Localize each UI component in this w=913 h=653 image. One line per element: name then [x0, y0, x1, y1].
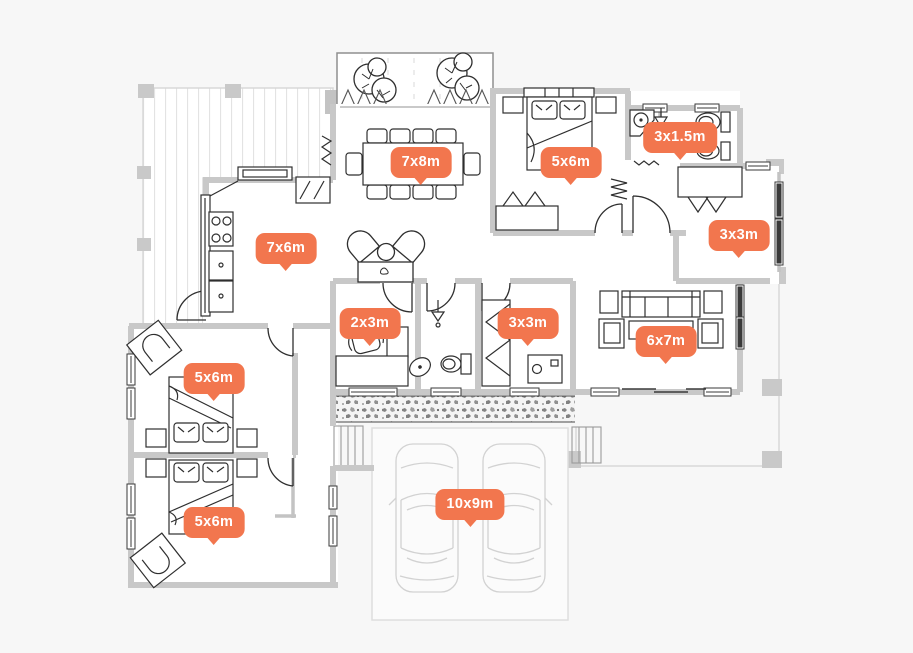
dimension-badge-bedroom-2: 5x6m	[184, 507, 245, 538]
dimension-badge-laundry: 3x3m	[498, 308, 559, 339]
dimension-badge-living: 6x7m	[636, 326, 697, 357]
dimension-badge-bathroom-top: 3x1.5m	[643, 122, 717, 153]
floor-plan-canvas: 7x8m 5x6m 3x1.5m 3x3m 7x6m 2x3m 3x3m 6x7…	[0, 0, 913, 653]
dresser	[496, 206, 558, 230]
dimension-badge-garage: 10x9m	[435, 489, 504, 520]
dimension-badge-dining: 7x8m	[391, 147, 452, 178]
sofa	[622, 291, 700, 317]
gravel-path	[333, 396, 575, 422]
dimension-badge-kitchen: 7x6m	[256, 233, 317, 264]
floor-plan-drawing	[0, 0, 913, 653]
fridge	[296, 177, 330, 203]
dimension-badge-dressing-right: 3x3m	[709, 220, 770, 251]
dimension-badge-office: 2x3m	[340, 308, 401, 339]
dimension-badge-bedroom-top: 5x6m	[541, 147, 602, 178]
dimension-badge-bedroom-1: 5x6m	[184, 363, 245, 394]
planter-balcony	[337, 53, 493, 110]
toilet-tank	[721, 112, 730, 132]
